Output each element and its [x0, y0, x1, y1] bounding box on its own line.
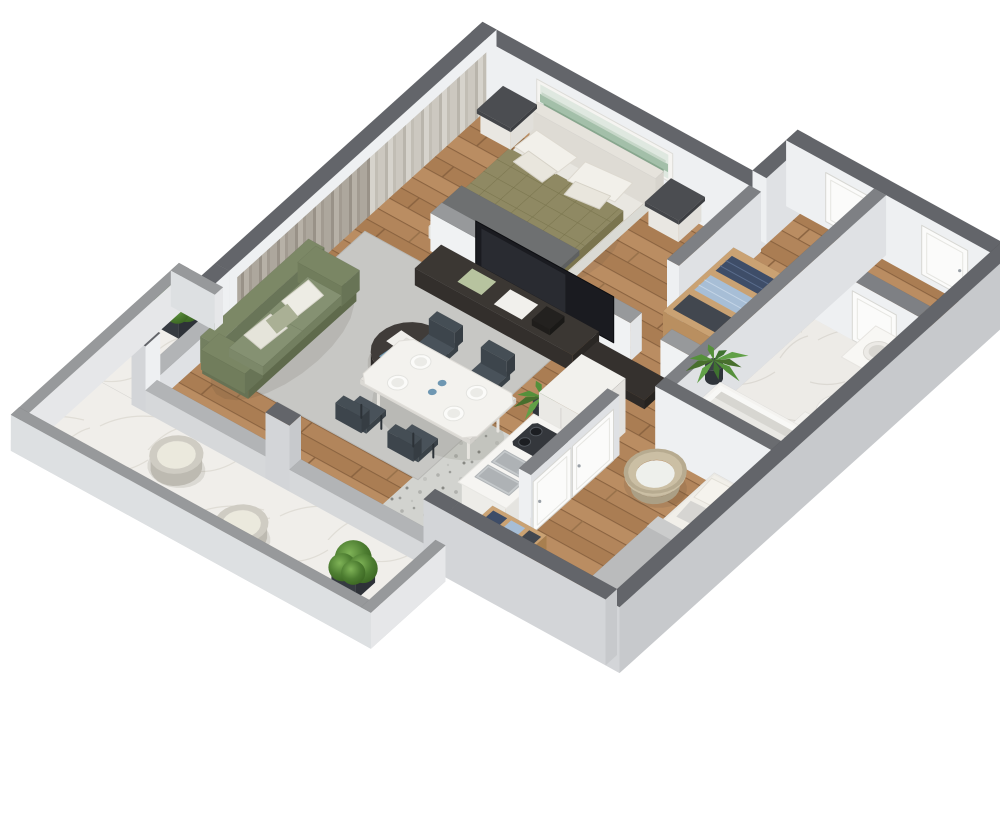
burner	[530, 427, 542, 436]
floor-plan-svg	[0, 0, 1000, 836]
scene-root	[11, 22, 1000, 673]
burner	[519, 438, 531, 447]
apartment-3d-floor-plan	[0, 0, 1000, 836]
